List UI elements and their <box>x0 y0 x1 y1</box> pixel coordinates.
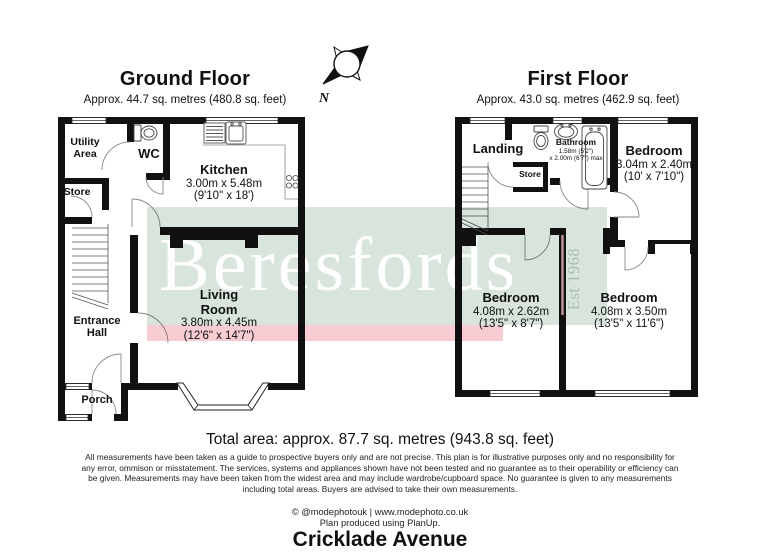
room-label-entrance-hall: Entrance Hall <box>66 315 128 340</box>
total-area-text: Total area: approx. 87.7 sq. metres (943… <box>0 431 760 449</box>
room-label-wc: WC <box>138 147 160 162</box>
ground-floor-subtitle: Approx. 44.7 sq. metres (480.8 sq. feet) <box>55 94 315 106</box>
room-label-porch: Porch <box>81 394 112 406</box>
compass-icon: N <box>316 36 382 110</box>
accent-band <box>147 325 503 341</box>
compass-north-label: N <box>318 91 330 106</box>
floorplan-page: Ground Floor Approx. 44.7 sq. metres (48… <box>0 0 760 552</box>
address-title: Cricklade Avenue <box>0 528 760 552</box>
hob-icon <box>286 175 298 188</box>
watermark-band: Beresfords Est 1968 <box>147 207 607 325</box>
established-watermark: Est 1968 <box>564 224 584 334</box>
disclaimer-text: All measurements have been taken as a gu… <box>80 452 680 494</box>
first-floor-title: First Floor <box>448 68 708 91</box>
stairs-ground-icon <box>72 224 108 309</box>
first-floor-title-block: First Floor Approx. 43.0 sq. metres (462… <box>448 68 708 106</box>
brand-watermark: Beresfords <box>159 209 518 321</box>
ground-floor-title: Ground Floor <box>55 68 315 91</box>
toilet-icon <box>134 125 157 141</box>
room-label-kitchen: Kitchen 3.00m x 5.48m (9'10" x 18') <box>164 163 284 203</box>
room-label-bedroom-top: Bedroom 3.04m x 2.40m (10' x 7'10") <box>599 144 709 184</box>
produced-credit: Plan produced using PlanUp. <box>0 518 760 528</box>
room-label-store-ground: Store <box>64 187 91 199</box>
room-label-utility: Utility Area <box>62 137 108 161</box>
kitchen-sink-icon <box>204 122 246 144</box>
ground-floor-title-block: Ground Floor Approx. 44.7 sq. metres (48… <box>55 68 315 106</box>
first-floor-subtitle: Approx. 43.0 sq. metres (462.9 sq. feet) <box>448 94 708 106</box>
bay-window-icon <box>177 383 269 410</box>
photo-credit: © @modephotouk | www.modephoto.co.uk <box>0 507 760 517</box>
room-label-landing: Landing <box>473 142 524 157</box>
room-label-store-first: Store <box>519 170 541 180</box>
